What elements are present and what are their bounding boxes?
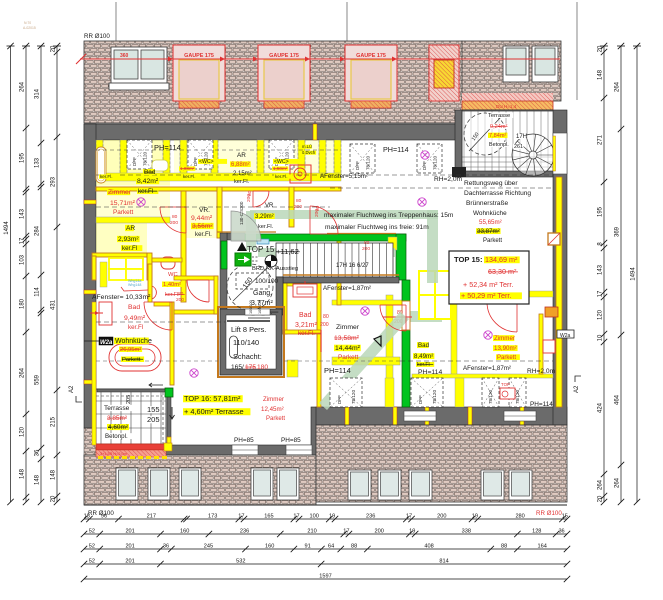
svg-text:<WC>: <WC> [199,159,214,165]
svg-text:201: 201 [125,559,134,565]
svg-text:DFF: DFF [355,161,360,170]
svg-text:431: 431 [51,299,57,310]
svg-text:m.LÜ: m.LÜ [302,144,312,149]
svg-text:100: 100 [309,514,318,520]
svg-text:9,44m²: 9,44m² [191,215,213,222]
svg-text:GAUPE 175: GAUPE 175 [269,53,299,59]
svg-text:ker.Fl.: ker.Fl. [100,174,113,179]
svg-text:80: 80 [172,214,178,220]
svg-text:80: 80 [364,240,370,246]
svg-text:15: 15 [562,514,568,520]
svg-text:Rettungsweg über: Rettungsweg über [464,180,518,187]
svg-text:DU H=1,4: DU H=1,4 [496,104,517,109]
svg-text:100/100: 100/100 [255,278,279,285]
svg-text:DFF: DFF [418,395,423,404]
svg-text:17: 17 [343,529,349,535]
svg-text:Zimmer: Zimmer [336,324,360,331]
svg-text:WC: WC [168,272,178,278]
svg-text:210: 210 [307,529,316,535]
svg-text:3+1,5R H=2,0m: 3+1,5R H=2,0m [100,452,127,456]
svg-text:148: 148 [598,69,604,80]
svg-text:Bad: Bad [144,169,156,176]
svg-text:+ 4,60m² Terrasse: + 4,60m² Terrasse [184,407,244,416]
svg-text:2,93m²: 2,93m² [118,236,139,243]
svg-text:ker.Fl.: ker.Fl. [258,224,274,230]
svg-text:200: 200 [375,529,384,535]
svg-text:Bad: Bad [299,312,312,319]
svg-text:20: 20 [51,495,57,502]
svg-text:DFF: DFF [337,395,342,404]
svg-text:DFF: DFF [132,157,137,166]
svg-text:3,77m²: 3,77m² [251,300,273,307]
svg-text:261: 261 [514,144,523,150]
svg-text:7,84m²: 7,84m² [489,133,507,139]
svg-text:52: 52 [89,529,95,535]
svg-text:Bad: Bad [128,304,140,311]
svg-text:114: 114 [35,287,41,297]
svg-text:88: 88 [501,544,507,550]
svg-text:DFF: DFF [193,157,198,166]
svg-text:ker.Fl: ker.Fl [417,362,430,368]
svg-text:33,87m²: 33,87m² [477,228,500,235]
svg-text:Wohnküche: Wohnküche [115,338,152,345]
svg-text:RH=2,0m: RH=2,0m [527,368,556,375]
svg-text:200: 200 [437,514,446,520]
svg-text:200: 200 [314,209,320,217]
svg-text:264: 264 [20,367,26,378]
svg-text:<WC>: <WC> [274,159,289,165]
svg-text:18: 18 [84,514,90,520]
svg-text:559: 559 [35,374,41,385]
svg-text:ker.Fl.: ker.Fl. [183,174,196,179]
svg-text:TOP 15: TOP 15 [454,255,481,264]
svg-text:88: 88 [351,544,357,550]
svg-text:PH=85: PH=85 [281,437,301,444]
svg-text:PH=85: PH=85 [234,437,254,444]
svg-text:Wohnküche: Wohnküche [473,210,507,217]
svg-text:36: 36 [35,449,41,456]
svg-text:AFenster=1,87m²: AFenster=1,87m² [463,365,511,372]
svg-text:ker.Fl: ker.Fl [122,245,137,252]
svg-text:17: 17 [293,514,299,520]
svg-text:120: 120 [20,426,26,437]
svg-text:175: 175 [245,364,256,371]
svg-text:195: 195 [20,152,26,163]
svg-text:165/: 165/ [231,364,244,371]
svg-text:+ 52,34 m² Terr.: + 52,34 m² Terr. [463,280,513,289]
svg-text:10: 10 [598,334,604,341]
svg-text:284: 284 [35,225,41,236]
svg-text:GAUPE 175: GAUPE 175 [356,53,386,59]
svg-text:15,71m²: 15,71m² [110,200,136,207]
svg-text:100/100: 100/100 [258,300,262,314]
svg-text:DFF: DFF [422,161,427,170]
svg-text:236: 236 [366,514,375,520]
svg-text:64: 64 [328,544,334,550]
svg-text:PH=114: PH=114 [324,366,351,375]
svg-text:120: 120 [598,309,604,320]
svg-text:PH=114: PH=114 [418,369,442,376]
svg-text:36: 36 [558,529,564,535]
svg-text:293: 293 [51,176,57,187]
svg-text:173: 173 [208,514,217,520]
svg-text:ker.Fl.: ker.Fl. [275,174,288,179]
svg-text:14,44m²: 14,44m² [335,345,361,352]
svg-text:201: 201 [125,544,134,550]
svg-text:A2: A2 [574,385,580,393]
svg-text:PH=114: PH=114 [383,145,409,154]
svg-text:AFenster=1,87m²: AFenster=1,87m² [323,285,371,292]
svg-text:180: 180 [20,298,26,309]
svg-text:Parkett: Parkett [338,354,358,361]
svg-text:Zimmer: Zimmer [108,189,132,196]
svg-text:143: 143 [20,208,26,219]
svg-text:160: 160 [180,529,189,535]
svg-text:195: 195 [598,206,604,217]
svg-text:264: 264 [598,479,604,490]
svg-text::: : [480,255,483,264]
svg-text:ker.Fl: ker.Fl [128,324,143,331]
svg-text:Whg148: Whg148 [128,283,141,287]
svg-text:271: 271 [598,134,604,145]
svg-text:1597: 1597 [319,574,331,580]
svg-text:17: 17 [20,237,26,244]
svg-text:13,90m²: 13,90m² [494,345,517,352]
svg-text:PH=114: PH=114 [154,143,181,152]
svg-text:369: 369 [615,226,621,237]
svg-text:A2: A2 [69,385,75,393]
svg-text:78/120: 78/120 [515,390,520,404]
svg-text:424: 424 [598,402,604,413]
svg-text:Brünnerstraße: Brünnerstraße [466,200,508,207]
svg-text:128: 128 [532,529,541,535]
svg-text:1494: 1494 [631,267,637,281]
svg-text:217: 217 [147,514,156,520]
svg-text:100/100: 100/100 [249,300,253,314]
svg-text:RR Ø100: RR Ø100 [84,33,110,40]
svg-text:19: 19 [472,514,478,520]
svg-text:Parkett: Parkett [113,209,133,216]
svg-text:Betonpl.: Betonpl. [489,142,509,148]
svg-text:464: 464 [615,394,621,405]
svg-text:200: 200 [362,246,370,252]
svg-text:17: 17 [238,514,244,520]
svg-text:VR: VR [265,203,274,209]
svg-text:78/120: 78/120 [488,390,493,404]
svg-text:78/120: 78/120 [432,390,437,404]
svg-text:155: 155 [147,405,160,414]
svg-text:20: 20 [598,495,604,502]
svg-text:VR.: VR. [199,207,210,214]
svg-text:AFenster= 10,33m²: AFenster= 10,33m² [92,294,151,301]
svg-text:130-C:S200: 130-C:S200 [239,201,244,225]
svg-text:N:70: N:70 [24,21,31,25]
svg-text:ö.Dvch: ö.Dvch [302,150,316,155]
svg-text:200: 200 [246,194,252,202]
svg-text:26,95m²: 26,95m² [120,347,141,353]
svg-text:Lift 8 Pers.: Lift 8 Pers. [231,325,266,334]
svg-text:Parkett: Parkett [122,357,141,363]
svg-text:3,29m²: 3,29m² [255,214,274,220]
svg-text:814: 814 [439,559,448,565]
svg-text:55,65m²: 55,65m² [479,219,502,226]
svg-text:Betonpl.: Betonpl. [105,433,128,440]
svg-text:A-02015: A-02015 [23,26,36,30]
svg-text:36: 36 [163,544,169,550]
svg-text:245: 245 [204,544,213,550]
svg-text:4,60m²: 4,60m² [108,424,128,431]
svg-text:9,49m²: 9,49m² [124,315,146,322]
svg-text:264: 264 [20,81,26,92]
svg-text:96: 96 [101,514,107,520]
svg-text:Zimmer: Zimmer [494,335,515,342]
svg-text:GAUPE 175: GAUPE 175 [184,53,214,59]
svg-text:17: 17 [598,290,604,297]
svg-text:80: 80 [296,198,302,204]
svg-text:19: 19 [409,529,415,535]
svg-text:ker.Fl.: ker.Fl. [298,330,315,337]
svg-text:W2a: W2a [560,333,571,339]
svg-text:110/140: 110/140 [233,338,259,347]
svg-text:AFenster=5,15m²: AFenster=5,15m² [320,173,368,180]
svg-text:maximaler Fluchtweg ins Treppe: maximaler Fluchtweg ins Treppenhaus: 15m [324,212,454,219]
svg-text:17: 17 [406,514,412,520]
svg-text:78/120: 78/120 [433,156,438,170]
svg-text:133: 133 [35,157,41,168]
svg-text:165: 165 [264,514,273,520]
svg-text:78/120: 78/120 [366,156,371,170]
svg-text:TOP: TOP [501,382,510,387]
svg-text:AR: AR [237,152,246,159]
svg-text:17H: 17H [516,134,527,140]
svg-text:236: 236 [240,529,249,535]
svg-text:52: 52 [89,559,95,565]
svg-text:314: 314 [35,88,41,99]
svg-text:1,40m²: 1,40m² [163,282,181,288]
svg-text:12,45m²: 12,45m² [261,406,284,413]
svg-text:AR: AR [126,225,135,232]
svg-text:8,42m²: 8,42m² [137,178,159,185]
svg-text:Dachterrasse Richtung: Dachterrasse Richtung [464,190,531,197]
svg-text:9,24m²: 9,24m² [490,124,508,130]
svg-text:91: 91 [305,544,311,550]
svg-text:360: 360 [120,53,129,59]
svg-text:Zimmer: Zimmer [263,396,284,403]
svg-text:Gang.: Gang. [253,290,272,297]
svg-text:280: 280 [515,514,524,520]
svg-text:148: 148 [51,469,57,480]
svg-text:BRD RK-Ausstieg: BRD RK-Ausstieg [252,266,298,272]
svg-text:201: 201 [125,529,134,535]
svg-text:205: 205 [147,415,160,424]
svg-text:3,56m²: 3,56m² [192,223,213,230]
svg-text:78/120: 78/120 [143,152,148,166]
svg-text:PH=114: PH=114 [530,401,553,408]
svg-text:205: 205 [126,395,132,404]
svg-text:160: 160 [265,544,274,550]
svg-text:W2a: W2a [100,340,113,346]
svg-text:ker.Fl.: ker.Fl. [195,231,212,238]
svg-text:TOP 16: 57,81m²: TOP 16: 57,81m² [184,394,241,403]
svg-text:148: 148 [20,468,26,479]
svg-text:134,69 m²: 134,69 m² [485,255,518,264]
svg-text:Parkett: Parkett [483,238,502,244]
svg-text:164: 164 [538,544,547,550]
svg-text:215: 215 [51,416,57,427]
svg-text:ker.Fl.: ker.Fl. [165,292,180,298]
svg-text:19: 19 [329,514,335,520]
svg-text:3,85m²: 3,85m² [107,415,127,422]
svg-text:Parkett: Parkett [266,416,285,422]
svg-text:532: 532 [236,559,245,565]
svg-text:408: 408 [424,544,433,550]
svg-text:143: 143 [598,264,604,275]
svg-text:1494: 1494 [4,221,10,235]
svg-text:200: 200 [320,322,329,328]
svg-text:200: 200 [170,220,178,226]
svg-text:ker.Fl: ker.Fl [138,188,153,195]
svg-text:8,49m²: 8,49m² [414,353,433,360]
svg-text:13,58m²: 13,58m² [334,335,360,342]
svg-text:338: 338 [462,529,471,535]
svg-text:2,15m²: 2,15m² [233,171,252,177]
svg-text:3,21m²: 3,21m² [295,322,317,329]
svg-text:ker.Fl.: ker.Fl. [234,179,250,185]
svg-text:Parkett: Parkett [497,355,516,361]
svg-text:+ 50,29 m² Terr.: + 50,29 m² Terr. [461,291,511,300]
svg-text:RR Ø100: RR Ø100 [536,510,562,517]
svg-text:RH=2,0m: RH=2,0m [434,176,463,183]
svg-text:180: 180 [257,364,268,371]
svg-text:264: 264 [615,477,621,488]
svg-text:Terrasse: Terrasse [104,405,130,412]
svg-text:80: 80 [323,314,329,320]
svg-text:6,88m²: 6,88m² [231,162,250,168]
svg-text:maximaler Fluchtweg ins freie:: maximaler Fluchtweg ins freie: 91m [325,224,429,231]
svg-text:52: 52 [89,544,95,550]
svg-text:Terrasse: Terrasse [488,113,510,119]
svg-text:78/120: 78/120 [351,390,356,404]
svg-text:148: 148 [35,474,41,485]
svg-text:Bad: Bad [418,342,430,349]
svg-text:103: 103 [20,254,26,265]
svg-text:264: 264 [615,81,621,92]
svg-text:17H 16 6/27: 17H 16 6/27 [336,263,369,269]
